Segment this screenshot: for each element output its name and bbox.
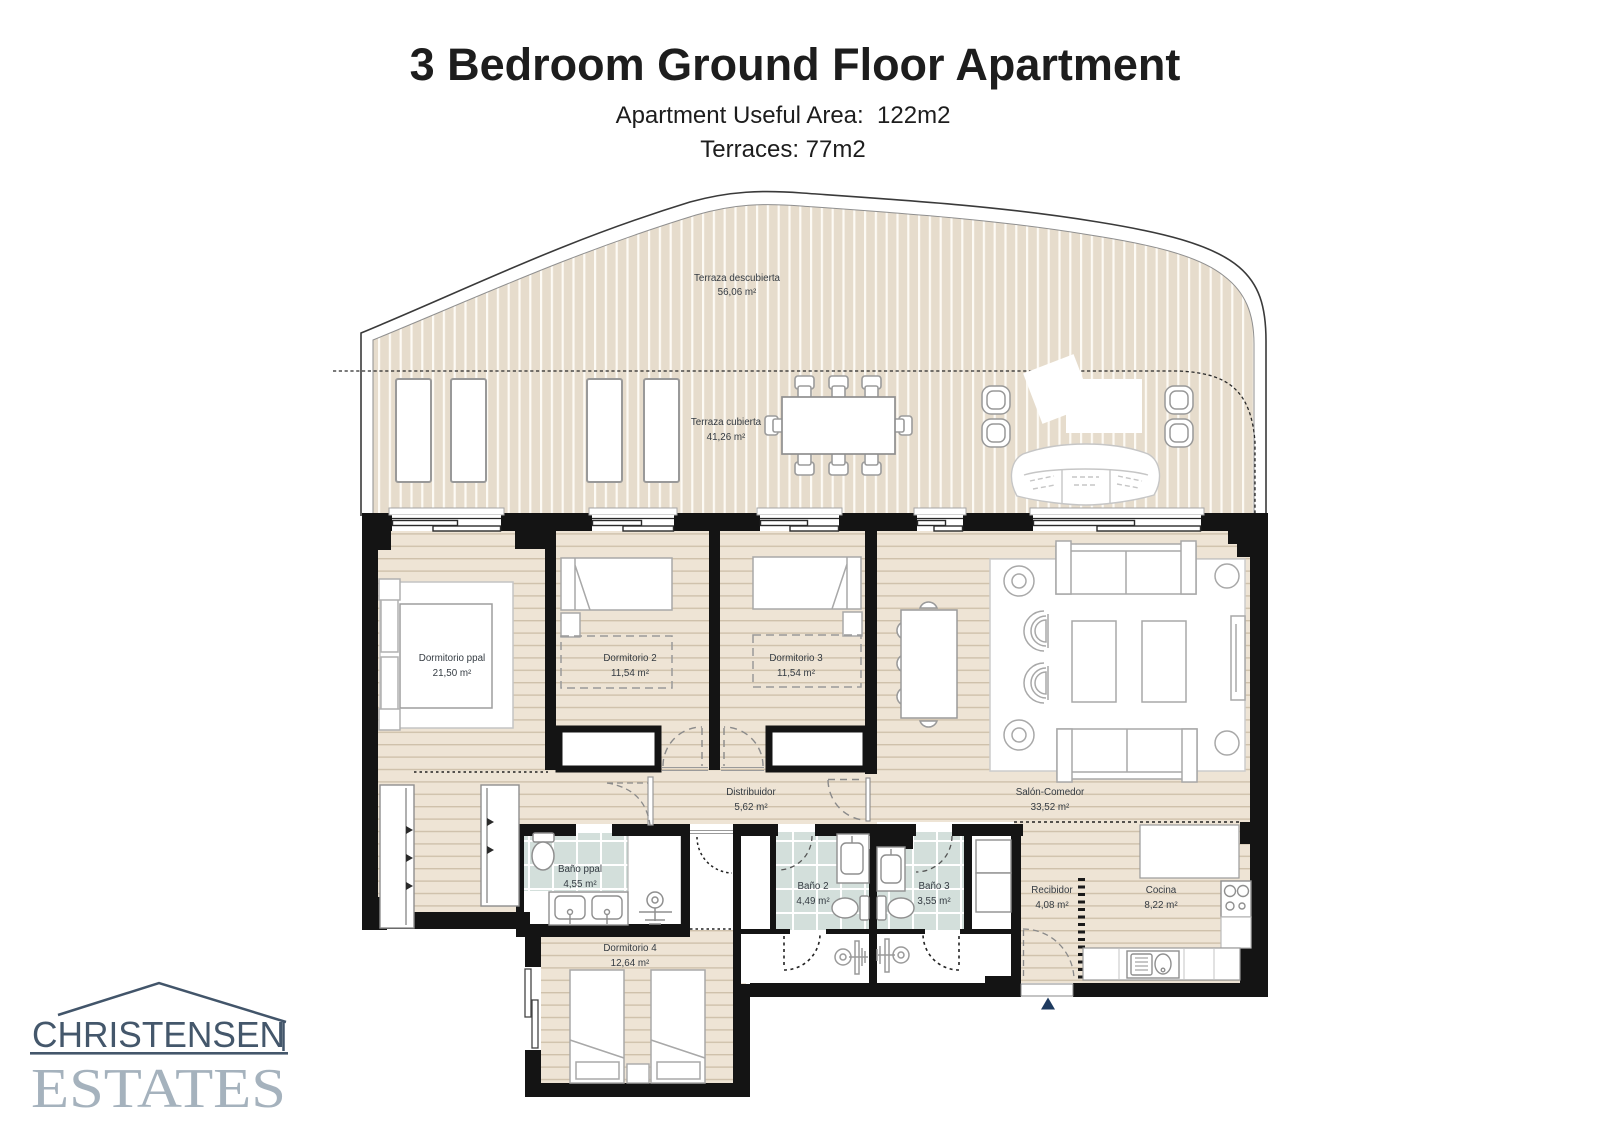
svg-text:Distribuidor: Distribuidor: [726, 787, 776, 798]
svg-text:8,22 m²: 8,22 m²: [1144, 900, 1178, 911]
svg-text:5,62 m²: 5,62 m²: [734, 802, 768, 813]
svg-text:4,55 m²: 4,55 m²: [563, 879, 597, 890]
svg-text:Baño ppal: Baño ppal: [558, 864, 602, 875]
svg-text:Dormitorio 2: Dormitorio 2: [603, 653, 656, 664]
svg-text:41,26 m²: 41,26 m²: [707, 432, 746, 443]
svg-text:Baño 2: Baño 2: [797, 881, 828, 892]
svg-text:Terraza descubierta: Terraza descubierta: [694, 273, 781, 284]
svg-text:3 Bedroom Ground Floor Apartme: 3 Bedroom Ground Floor Apartment: [410, 39, 1181, 90]
svg-text:Recibidor: Recibidor: [1031, 885, 1073, 896]
svg-text:56,06 m²: 56,06 m²: [718, 287, 757, 298]
svg-text:Dormitorio 3: Dormitorio 3: [769, 653, 823, 664]
svg-text:11,54 m²: 11,54 m²: [611, 668, 650, 679]
svg-text:Terraza cubierta: Terraza cubierta: [691, 417, 762, 428]
svg-text:33,52 m²: 33,52 m²: [1031, 802, 1070, 813]
svg-text:Baño 3: Baño 3: [918, 881, 950, 892]
svg-text:12,64 m²: 12,64 m²: [611, 958, 650, 969]
svg-text:Dormitorio ppal: Dormitorio ppal: [419, 653, 485, 664]
svg-text:ESTATES: ESTATES: [31, 1058, 286, 1120]
svg-text:Cocina: Cocina: [1146, 885, 1177, 896]
svg-text:11,54 m²: 11,54 m²: [777, 668, 816, 679]
svg-text:Dormitorio 4: Dormitorio 4: [603, 943, 657, 954]
svg-text:4,49 m²: 4,49 m²: [796, 896, 830, 907]
svg-text:Apartment Useful Area: 122m2: Apartment Useful Area: 122m2: [616, 102, 951, 129]
svg-text:Terraces: 77m2: Terraces: 77m2: [700, 136, 865, 163]
svg-text:4,08 m²: 4,08 m²: [1035, 900, 1069, 911]
svg-text:3,55 m²: 3,55 m²: [917, 896, 951, 907]
svg-text:CHRISTENSEN: CHRISTENSEN: [32, 1014, 285, 1055]
svg-text:21,50 m²: 21,50 m²: [433, 668, 472, 679]
svg-text:Salón-Comedor: Salón-Comedor: [1016, 787, 1085, 798]
